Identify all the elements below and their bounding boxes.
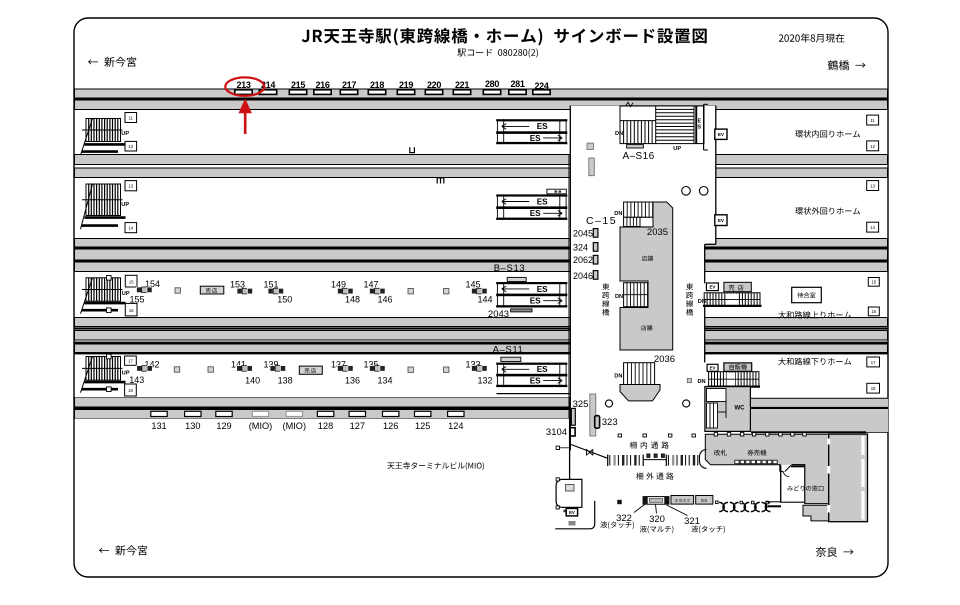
- svg-text:130: 130: [185, 421, 200, 431]
- svg-text:125: 125: [415, 421, 430, 431]
- svg-text:136: 136: [345, 375, 360, 385]
- svg-text:16: 16: [871, 309, 876, 314]
- svg-text:18: 18: [128, 388, 133, 393]
- svg-text:215: 215: [291, 80, 305, 90]
- svg-text:DN: DN: [614, 373, 622, 379]
- svg-text:153: 153: [230, 279, 245, 289]
- svg-text:324: 324: [573, 243, 588, 253]
- svg-text:2046: 2046: [573, 271, 593, 281]
- svg-text:WC: WC: [735, 406, 746, 412]
- svg-text:A–S16: A–S16: [623, 151, 655, 162]
- svg-text:213: 213: [236, 80, 250, 90]
- svg-text:13: 13: [870, 184, 875, 189]
- svg-text:DN: DN: [698, 299, 706, 305]
- svg-text:2035: 2035: [647, 227, 668, 238]
- svg-text:ES: ES: [537, 285, 548, 294]
- svg-text:15: 15: [129, 279, 134, 284]
- svg-text:14: 14: [870, 225, 875, 230]
- svg-text:ES: ES: [530, 209, 541, 218]
- svg-text:217: 217: [342, 80, 356, 90]
- svg-text:ES: ES: [537, 122, 548, 131]
- svg-text:2043: 2043: [488, 309, 509, 320]
- svg-text:11: 11: [129, 116, 134, 121]
- svg-text:12: 12: [870, 144, 875, 149]
- svg-text:129: 129: [216, 421, 231, 431]
- svg-text:2062: 2062: [573, 255, 593, 265]
- svg-text:17: 17: [128, 359, 133, 364]
- svg-text:(MIO): (MIO): [283, 421, 306, 431]
- svg-text:UP: UP: [121, 131, 129, 137]
- svg-text:140: 140: [245, 375, 260, 385]
- svg-text:ES: ES: [537, 197, 548, 206]
- svg-text:320: 320: [649, 514, 665, 525]
- svg-text:ES: ES: [537, 365, 548, 374]
- svg-text:219: 219: [399, 80, 413, 90]
- svg-text:132: 132: [477, 375, 492, 385]
- svg-text:11: 11: [870, 118, 875, 123]
- svg-text:281: 281: [510, 79, 524, 89]
- svg-text:124: 124: [448, 421, 463, 431]
- svg-text:EV: EV: [718, 218, 725, 223]
- svg-text:13: 13: [128, 184, 133, 189]
- svg-text:221: 221: [455, 80, 469, 90]
- svg-text:DN: DN: [615, 131, 623, 137]
- svg-text:DN: DN: [615, 294, 623, 300]
- svg-text:UP: UP: [673, 146, 681, 152]
- svg-text:15: 15: [871, 280, 876, 285]
- svg-text:220: 220: [427, 80, 441, 90]
- svg-text:DN: DN: [698, 379, 706, 385]
- svg-text:145: 145: [465, 279, 480, 289]
- svg-text:ES: ES: [701, 498, 707, 503]
- svg-text:EV: EV: [710, 365, 716, 370]
- svg-text:(MIO): (MIO): [249, 421, 272, 431]
- svg-text:216: 216: [315, 80, 329, 90]
- svg-text:EV: EV: [569, 510, 575, 515]
- svg-text:ES: ES: [530, 134, 541, 143]
- svg-text:323: 323: [602, 417, 618, 428]
- svg-text:151: 151: [263, 279, 278, 289]
- svg-text:150: 150: [277, 294, 292, 304]
- svg-text:155: 155: [129, 294, 144, 304]
- svg-text:12: 12: [128, 144, 133, 149]
- svg-text:146: 146: [377, 294, 392, 304]
- svg-text:EV: EV: [709, 285, 715, 290]
- svg-text:149: 149: [331, 279, 346, 289]
- svg-text:ES: ES: [530, 297, 541, 306]
- svg-text:2036: 2036: [654, 354, 675, 365]
- svg-text:17: 17: [871, 360, 876, 365]
- svg-text:126: 126: [383, 421, 398, 431]
- svg-text:138: 138: [278, 375, 293, 385]
- svg-text:2045: 2045: [573, 228, 593, 238]
- svg-text:131: 131: [151, 421, 166, 431]
- svg-text:321: 321: [684, 516, 700, 527]
- svg-text:134: 134: [377, 375, 392, 385]
- svg-text:A–S11: A–S11: [493, 345, 524, 356]
- svg-text:148: 148: [345, 294, 360, 304]
- svg-text:143: 143: [129, 375, 144, 385]
- svg-text:C–15: C–15: [586, 215, 617, 227]
- svg-text:EV: EV: [718, 132, 725, 137]
- svg-text:ES: ES: [530, 377, 541, 386]
- svg-text:147: 147: [363, 279, 378, 289]
- svg-text:144: 144: [477, 294, 492, 304]
- svg-text:18: 18: [871, 386, 876, 391]
- svg-text:224: 224: [534, 81, 548, 91]
- svg-text:128: 128: [318, 421, 333, 431]
- svg-text:B–S13: B–S13: [494, 263, 526, 274]
- svg-text:3104: 3104: [546, 427, 567, 438]
- svg-text:218: 218: [370, 80, 384, 90]
- svg-text:127: 127: [350, 421, 365, 431]
- svg-text:16: 16: [129, 308, 134, 313]
- svg-text:280: 280: [485, 79, 499, 89]
- svg-text:14: 14: [128, 226, 133, 231]
- svg-text:UP: UP: [121, 202, 129, 208]
